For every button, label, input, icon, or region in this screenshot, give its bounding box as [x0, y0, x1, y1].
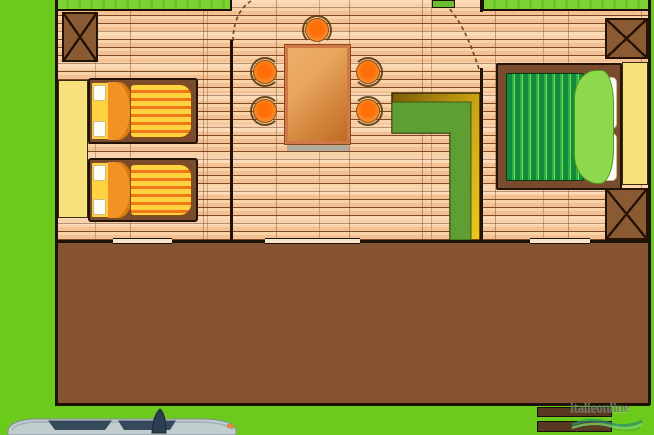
window-opening-right: [530, 238, 590, 244]
stool: [356, 60, 380, 84]
car-light: [227, 424, 234, 428]
top-left-garden-strip: [57, 0, 232, 11]
green-striped-duvet: [506, 73, 584, 181]
stool: [253, 99, 277, 123]
post-top-right: [605, 18, 648, 59]
plan-left-border: [55, 0, 58, 405]
car-window: [118, 421, 176, 431]
car-mirror-fin: [152, 409, 166, 433]
pillow: [93, 199, 106, 215]
stool: [305, 18, 329, 42]
watermark-brand: italieonline: [570, 401, 654, 415]
floor-plan-scene: italieonline: [0, 0, 654, 435]
single-bed-1: [88, 78, 198, 144]
pillow: [93, 165, 106, 181]
wall-right-bedroom-jamb: [480, 0, 483, 12]
single-bed-2: [88, 158, 198, 222]
car-roof: [8, 409, 236, 435]
top-right-garden-strip: [482, 0, 648, 11]
sliding-door-opening: [265, 238, 360, 244]
post-top-left: [62, 12, 98, 62]
double-bed: [496, 63, 622, 190]
post-bottom-right: [605, 188, 648, 240]
striped-duvet: [130, 164, 192, 216]
wardrobe-right-bedroom: [622, 62, 648, 185]
striped-duvet: [130, 84, 192, 138]
car-window: [48, 421, 112, 431]
wall-right-bedroom: [480, 68, 483, 242]
stool: [253, 60, 277, 84]
wardrobe-left-bedroom: [58, 80, 88, 218]
light-green-blanket: [574, 70, 614, 184]
terrace-deck: [57, 242, 648, 403]
stool: [356, 99, 380, 123]
top-small-green-fixture: [432, 0, 455, 8]
wall-left-bedroom: [230, 40, 233, 242]
pillow: [93, 85, 106, 101]
deck-bottom-border: [55, 403, 650, 406]
window-opening-left: [113, 238, 172, 244]
plan-right-border: [648, 0, 651, 405]
dining-table: [285, 45, 350, 144]
watermark: italieonline: [570, 401, 654, 435]
pillow: [93, 121, 106, 137]
wave-logo-icon: [570, 415, 644, 433]
